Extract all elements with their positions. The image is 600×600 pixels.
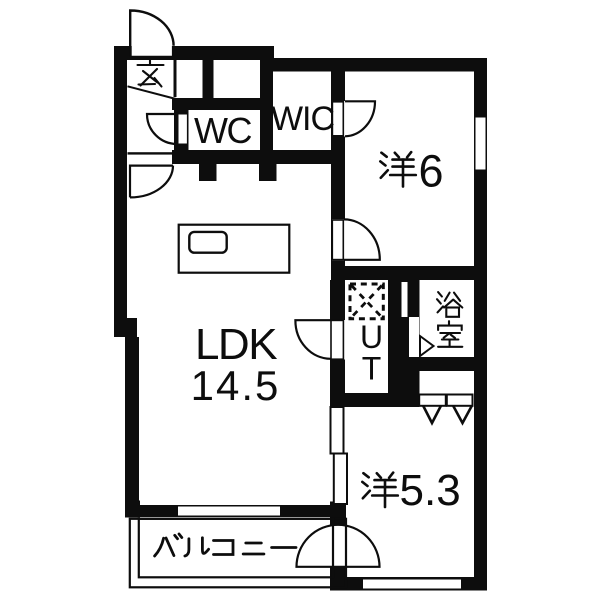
svg-text:14.5: 14.5 bbox=[191, 362, 281, 409]
svg-text:6: 6 bbox=[419, 146, 444, 197]
svg-text:5.3: 5.3 bbox=[400, 466, 461, 515]
svg-text:T: T bbox=[362, 351, 382, 387]
svg-text:WC: WC bbox=[194, 110, 251, 151]
svg-text:WIC: WIC bbox=[271, 100, 335, 138]
